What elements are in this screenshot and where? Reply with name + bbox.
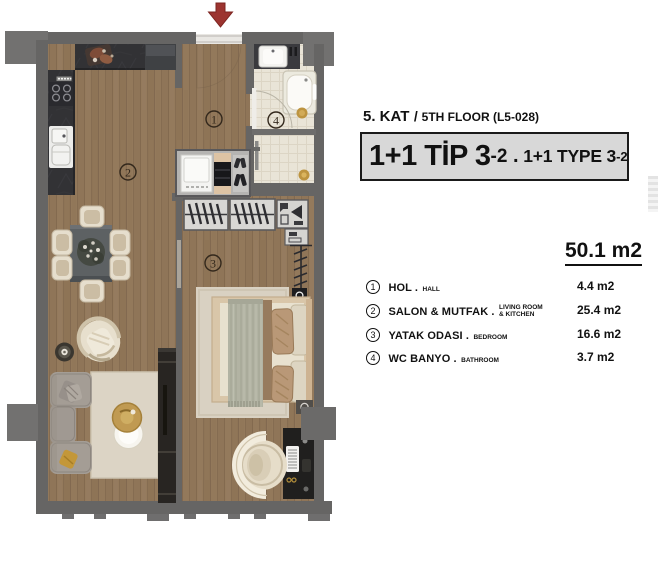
svg-text:2: 2 [125,166,131,180]
svg-text:4: 4 [273,114,279,128]
svg-text:1: 1 [211,113,217,127]
svg-text:3: 3 [210,257,216,271]
